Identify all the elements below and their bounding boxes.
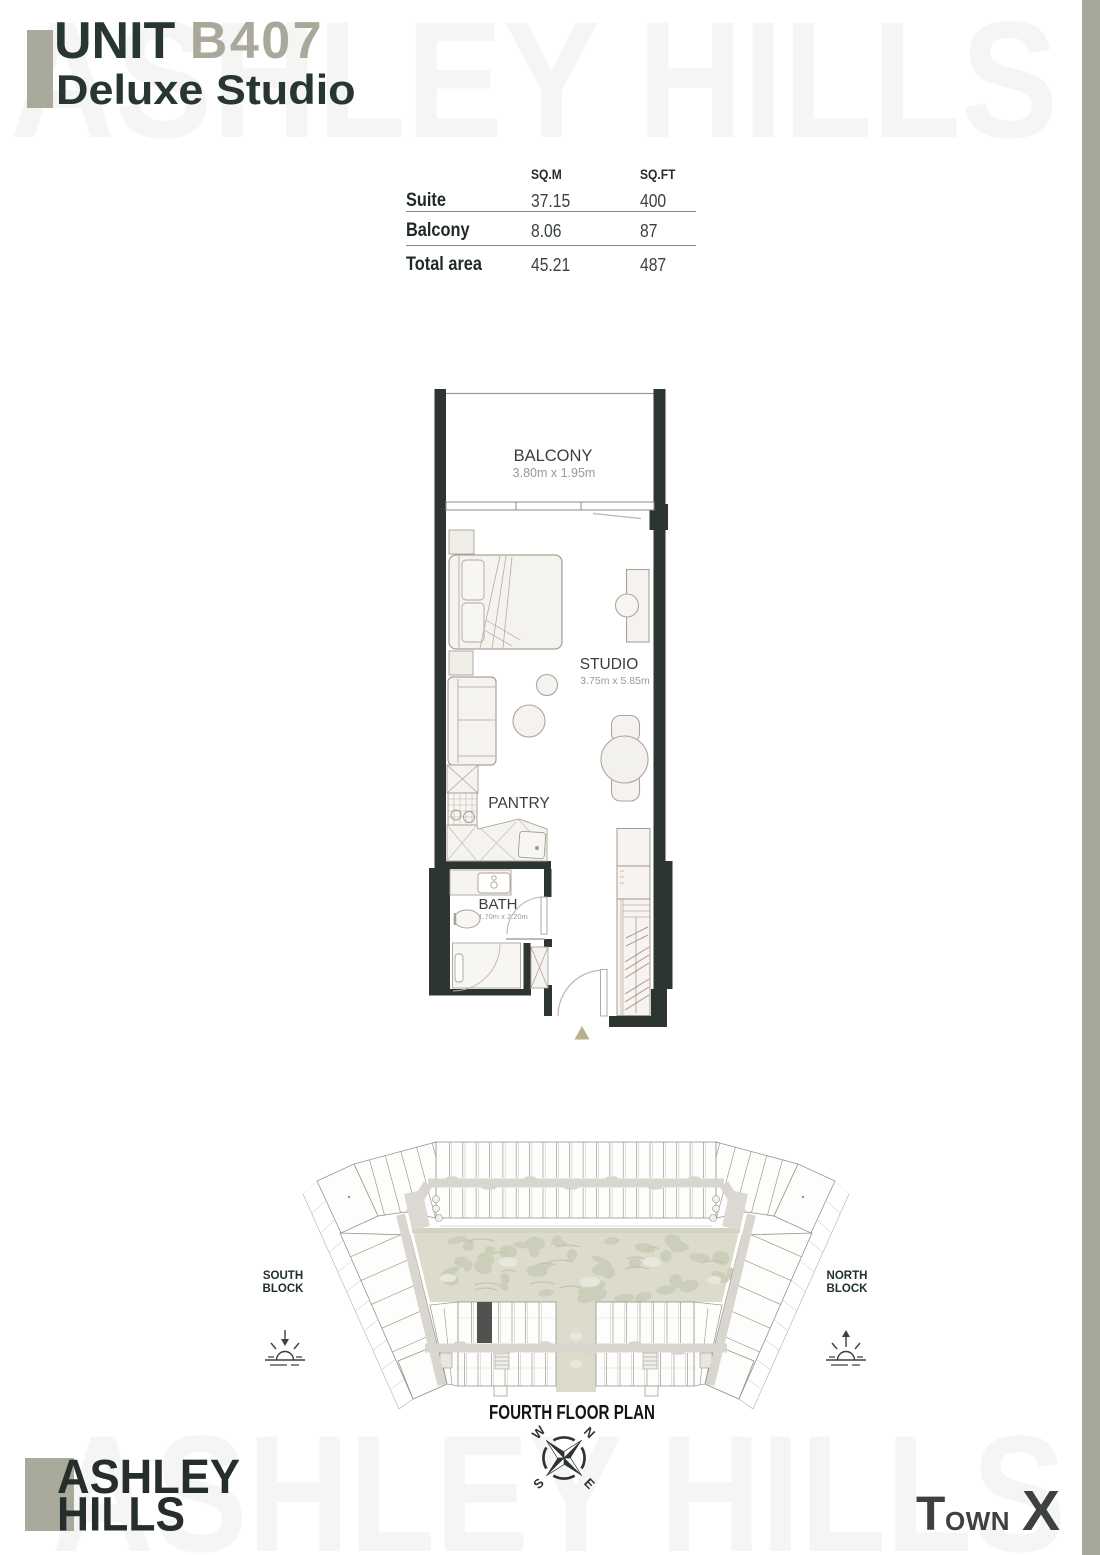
svg-text:T: T (916, 1488, 945, 1540)
svg-text:STUDIO: STUDIO (580, 656, 639, 673)
svg-text:W: W (529, 1422, 549, 1442)
svg-text:X: X (1022, 1480, 1060, 1540)
svg-text:HILLS: HILLS (57, 1488, 185, 1541)
svg-text:3.80m x 1.95m: 3.80m x 1.95m (513, 466, 596, 480)
svg-text:1.70m x 2.20m: 1.70m x 2.20m (478, 912, 528, 921)
svg-text:NORTH: NORTH (827, 1270, 868, 1282)
svg-text:3.75m x 5.85m: 3.75m x 5.85m (580, 675, 650, 687)
svg-text:BALCONY: BALCONY (514, 447, 593, 465)
svg-text:E: E (581, 1475, 598, 1492)
svg-text:BLOCK: BLOCK (827, 1283, 869, 1295)
svg-text:OWN: OWN (945, 1506, 1010, 1536)
svg-text:BLOCK: BLOCK (263, 1283, 305, 1295)
svg-text:N: N (581, 1424, 598, 1441)
svg-text:S: S (530, 1475, 547, 1492)
svg-text:BATH: BATH (479, 896, 518, 913)
svg-text:PANTRY: PANTRY (488, 795, 549, 812)
svg-text:SOUTH: SOUTH (263, 1270, 303, 1282)
